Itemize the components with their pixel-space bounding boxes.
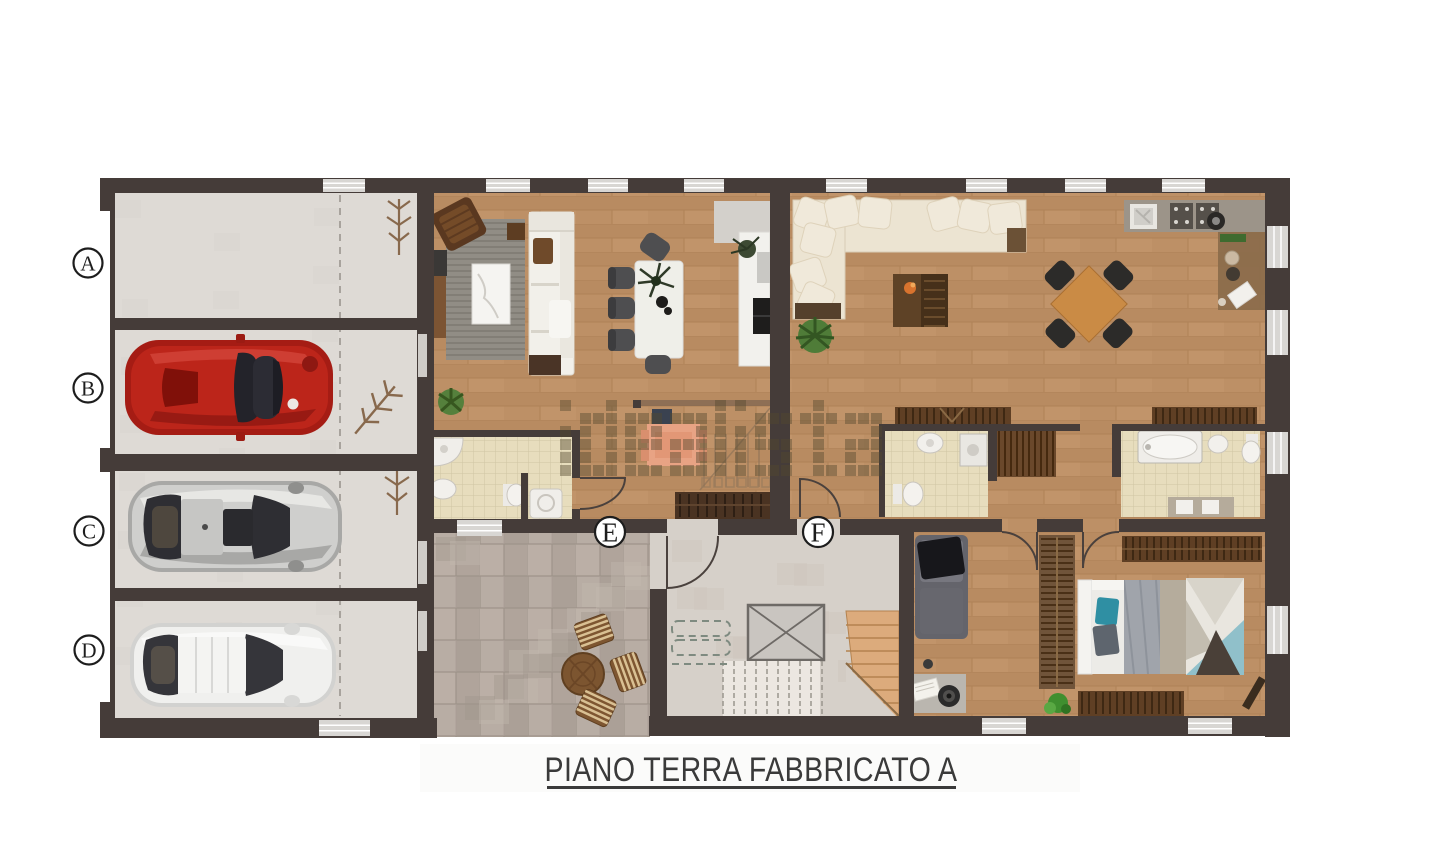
svg-text:F: F: [810, 517, 825, 547]
svg-text:A: A: [80, 251, 96, 275]
svg-text:B: B: [81, 376, 95, 400]
svg-text:E: E: [602, 517, 619, 547]
svg-text:D: D: [81, 638, 96, 662]
svg-text:C: C: [82, 519, 96, 543]
svg-text:PIANO TERRA FABBRICATO A: PIANO TERRA FABBRICATO A: [545, 751, 958, 789]
